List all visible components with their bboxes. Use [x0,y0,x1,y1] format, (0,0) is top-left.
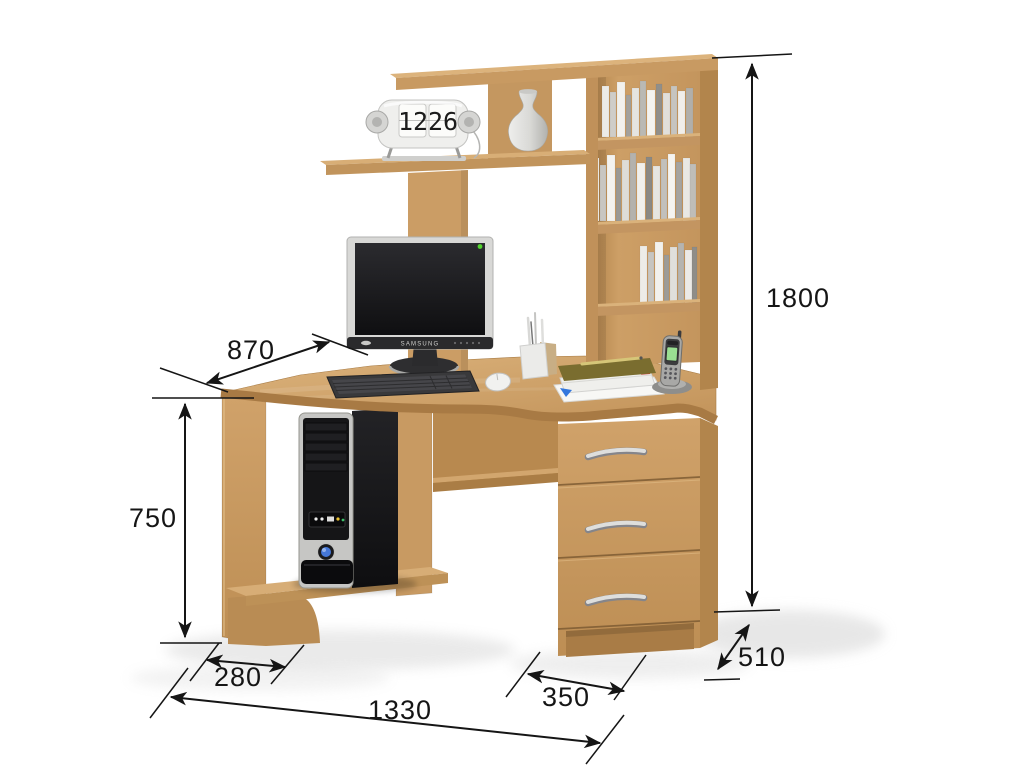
pedestal-side [700,418,718,648]
vase-mouth [519,89,537,94]
drawer-pedestal [558,418,718,657]
monitor-button [361,341,371,345]
clock-right-knob-cap [464,117,474,127]
port-icon [327,517,334,522]
pc-tower-side [352,408,398,588]
books-row-middle [592,153,696,221]
shadow-center [510,649,750,679]
pc-power-glint [322,548,326,552]
clock-base-plate [382,156,466,161]
pc-lower-band [301,560,353,584]
pen-cup-front [520,343,548,379]
phone-earpiece [667,341,678,346]
monitor-brand: SAMSUNG [401,342,440,348]
shadow-right [695,610,885,658]
dimension-label-overall-width: 1330 [368,695,432,725]
usb-port-icon [314,517,317,520]
drive-bays [305,423,347,471]
audio-port-icon [342,519,345,522]
pens [528,313,543,347]
dimension-overall-height-1800 [712,54,792,612]
desk-scene: 12 26 SAMSUNG [0,0,1024,768]
pc-power-led [321,547,331,557]
audio-port-icon [336,517,339,520]
phone-keypad [664,367,678,380]
dimension-label-desk-height: 750 [129,503,177,533]
power-led-icon [478,244,483,249]
monitor: SAMSUNG [347,237,493,375]
dimension-label-shelf-width: 280 [214,662,262,692]
clock-minutes: 26 [428,107,458,136]
clock-hours: 12 [398,107,428,136]
product-drawing-computer-desk: 12 26 SAMSUNG [0,0,1024,768]
pc-tower [299,408,398,588]
monitor-screen [355,243,485,335]
bookcase-side-panel [700,62,718,390]
dimension-label-depth: 510 [738,642,786,672]
dimension-label-overall-height: 1800 [766,283,830,313]
pen-tip [639,356,642,359]
usb-port-icon [320,517,323,520]
clock-left-knob-cap [372,117,382,127]
bookcase-left-stile [586,69,598,392]
dimension-label-desk-edge: 870 [227,335,275,365]
pen-cup [520,313,557,379]
dimension-label-pedestal-width: 350 [542,682,590,712]
phone-screen [666,347,678,362]
flip-clock: 12 26 [366,100,480,161]
